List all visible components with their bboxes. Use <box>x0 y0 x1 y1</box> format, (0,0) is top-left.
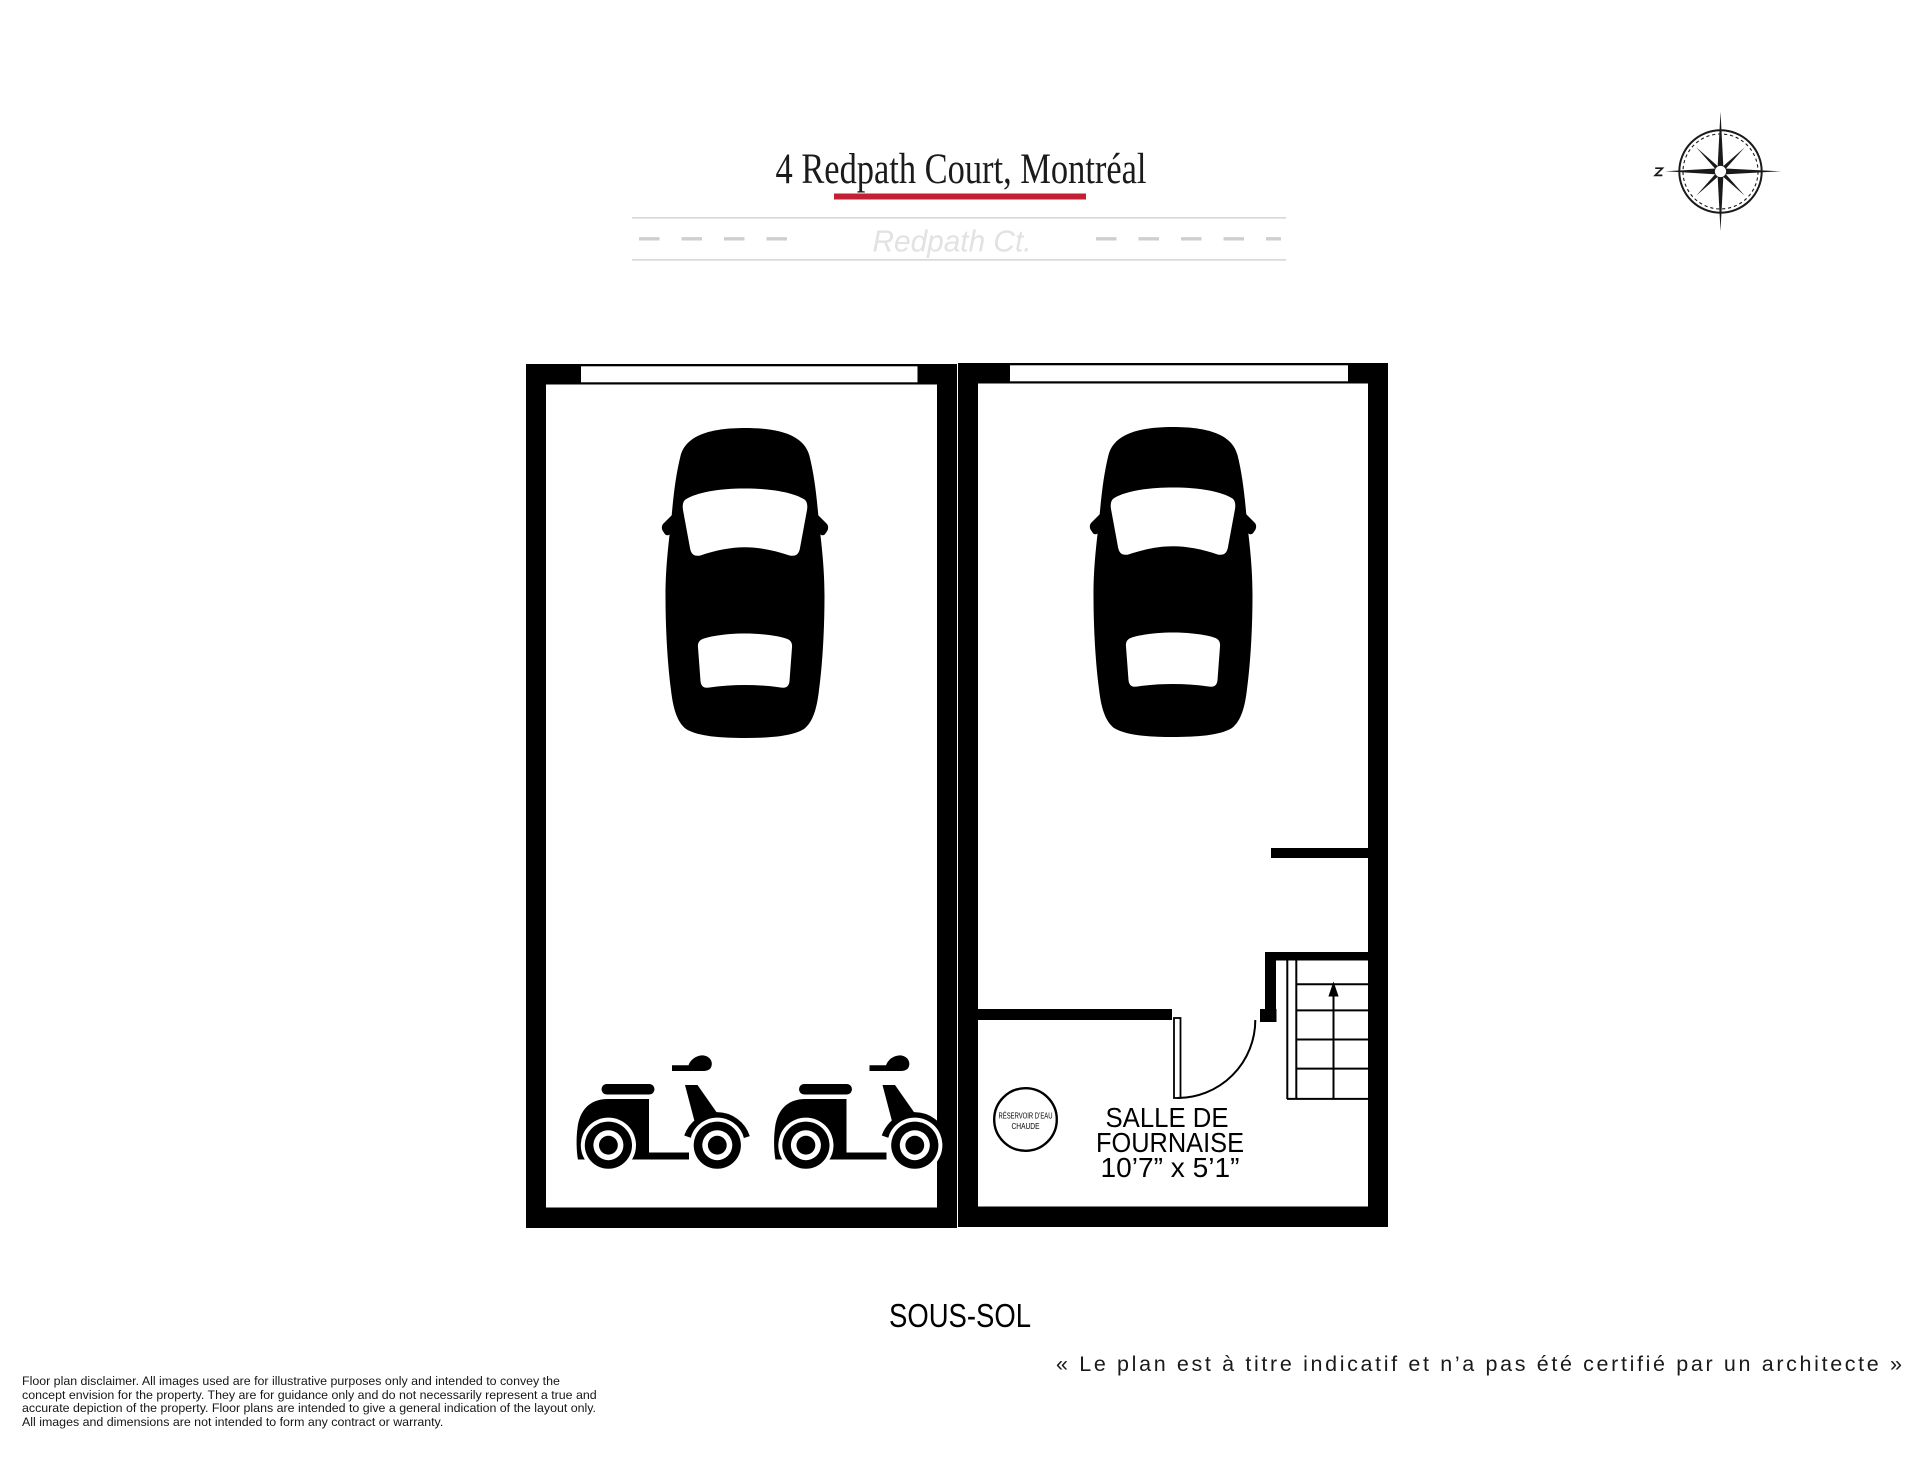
svg-text:10’7” x 5’1”: 10’7” x 5’1” <box>1101 1152 1240 1183</box>
svg-text:4 Redpath Court, Montréal: 4 Redpath Court, Montréal <box>776 146 1147 193</box>
svg-text:« Le plan est à titre indicati: « Le plan est à titre indicatif et n’a p… <box>1056 1352 1902 1376</box>
svg-text:Redpath Ct.: Redpath Ct. <box>873 225 1032 259</box>
svg-text:SOUS-SOL: SOUS-SOL <box>889 1297 1031 1334</box>
svg-text:RÉSERVOIR D’EAU: RÉSERVOIR D’EAU <box>999 1112 1053 1121</box>
svg-text:CHAUDE: CHAUDE <box>1012 1122 1040 1131</box>
